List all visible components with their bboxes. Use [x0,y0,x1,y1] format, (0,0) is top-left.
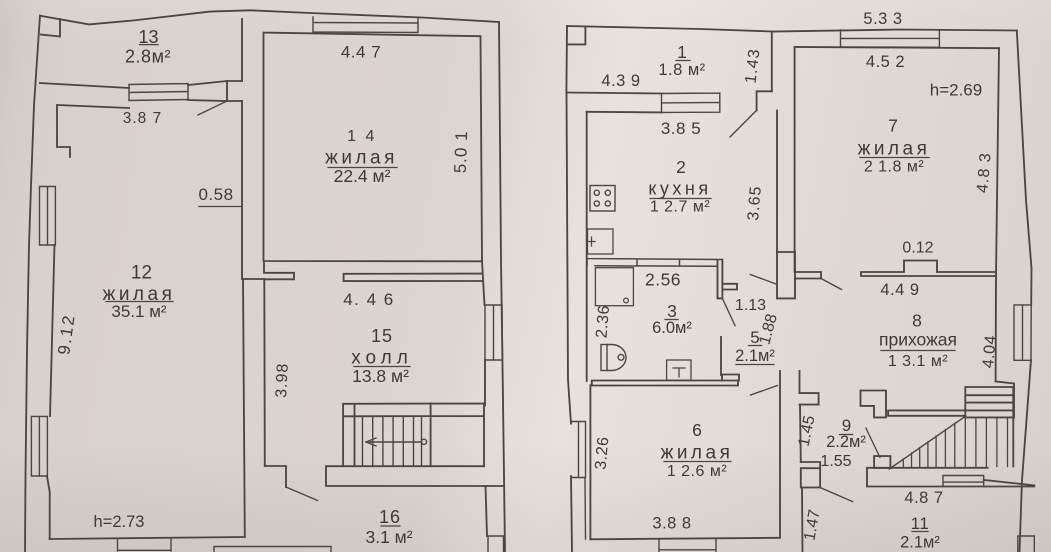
svg-text:2: 2 [676,157,686,177]
svg-text:2.56: 2.56 [645,270,681,290]
svg-text:8: 8 [912,311,922,331]
svg-text:7: 7 [888,116,898,136]
svg-text:0.12: 0.12 [902,240,933,257]
svg-text:4.3 9: 4.3 9 [601,72,640,90]
svg-text:3.65: 3.65 [745,185,765,221]
svg-text:22.4 м²: 22.4 м² [334,166,391,186]
svg-text:4.4 7: 4.4 7 [341,43,381,62]
svg-text:1: 1 [677,42,687,62]
svg-text:2.2м²: 2.2м² [826,433,866,451]
svg-text:жилая: жилая [661,443,734,464]
svg-text:2.8м²: 2.8м² [125,47,171,67]
svg-text:6.0м²: 6.0м² [652,319,692,337]
svg-text:9.12: 9.12 [54,313,79,356]
svg-text:4.8 7: 4.8 7 [904,489,943,507]
svg-text:3.98: 3.98 [273,362,292,398]
svg-text:1.8 м²: 1.8 м² [658,61,705,79]
svg-text:0.58: 0.58 [198,185,233,204]
svg-text:4.04: 4.04 [980,334,1000,368]
svg-text:1 3.1 м²: 1 3.1 м² [888,353,949,370]
svg-text:35.1 м²: 35.1 м² [111,302,166,321]
svg-text:5.3 3: 5.3 3 [863,10,902,28]
svg-text:1.55: 1.55 [820,453,851,470]
svg-text:5.0 1: 5.0 1 [451,130,471,173]
svg-text:1 2.6 м²: 1 2.6 м² [667,463,728,480]
svg-text:3.26: 3.26 [593,436,613,470]
svg-text:h=2.73: h=2.73 [94,513,145,531]
svg-text:4.8 3: 4.8 3 [974,152,994,194]
svg-text:12: 12 [131,263,152,284]
svg-text:4. 4 6: 4. 4 6 [343,290,395,309]
svg-text:3.1 м²: 3.1 м² [365,527,412,547]
svg-text:6: 6 [692,420,702,440]
svg-text:16: 16 [379,507,401,527]
svg-text:2 1.8 м²: 2 1.8 м² [864,159,925,176]
svg-text:13.8 м²: 13.8 м² [352,366,409,386]
svg-text:кухня: кухня [648,179,711,199]
svg-text:3.8 8: 3.8 8 [652,515,691,533]
svg-text:3.8 5: 3.8 5 [661,119,701,138]
svg-text:h=2.69: h=2.69 [930,81,982,100]
svg-text:4.5 2: 4.5 2 [866,53,905,71]
svg-text:2.1м²: 2.1м² [735,347,775,365]
svg-text:1 4: 1 4 [347,128,377,145]
svg-text:4.4 9: 4.4 9 [880,281,919,299]
svg-text:2.1м²: 2.1м² [900,534,940,552]
svg-text:2.36: 2.36 [593,304,613,338]
svg-text:1.13: 1.13 [735,297,766,314]
svg-text:жилая: жилая [858,139,931,160]
svg-text:1.45: 1.45 [796,414,819,448]
svg-text:3.8 7: 3.8 7 [123,110,162,127]
svg-text:1.47: 1.47 [801,508,823,542]
svg-text:3: 3 [667,301,677,321]
svg-text:прихожая: прихожая [879,330,957,350]
svg-text:1.43: 1.43 [742,47,763,84]
svg-text:1 2.7 м²: 1 2.7 м² [650,199,711,216]
svg-text:15: 15 [371,326,393,346]
svg-text:1.88: 1.88 [756,312,781,347]
svg-text:11: 11 [911,514,930,533]
